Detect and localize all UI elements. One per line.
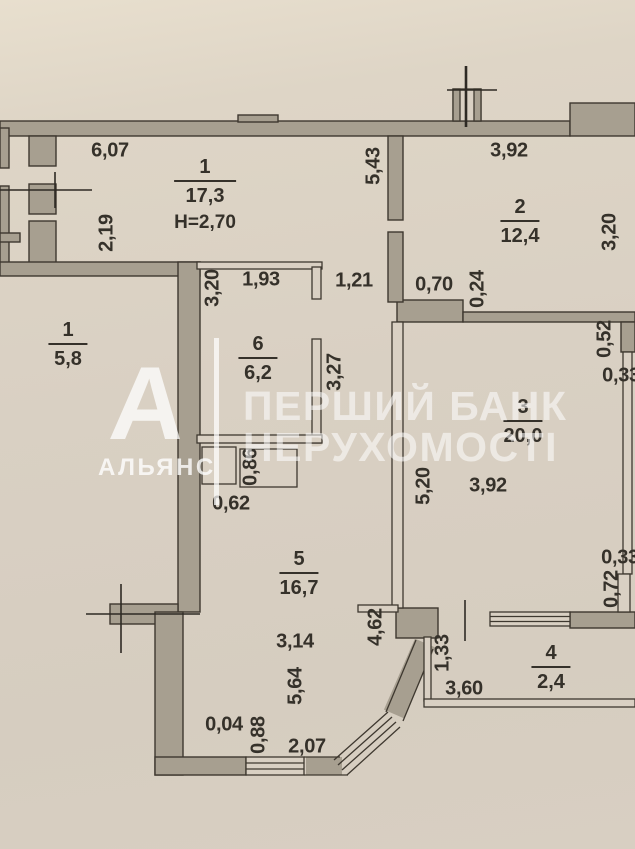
- dim-1-21: 1,21: [335, 270, 373, 293]
- floor-plan: 1 17,3 H=2,70 2 12,4 3 20,0 4 2,4 5 16,7…: [0, 0, 635, 849]
- dim-0-86: 0,86: [240, 448, 263, 486]
- dim-5-20: 5,20: [413, 467, 436, 505]
- room-number: 1: [174, 157, 236, 182]
- dim-5-64: 5,64: [285, 667, 308, 705]
- room-label-living: 1 17,3 H=2,70: [174, 157, 236, 232]
- room-area: 2,4: [531, 668, 570, 692]
- dim-3-60: 3,60: [445, 678, 483, 701]
- dim-3-92-room3: 3,92: [469, 475, 507, 498]
- dim-0-33-upper: 0,33: [602, 365, 635, 388]
- dim-0-33-lower: 0,33: [601, 547, 635, 570]
- dim-0-04: 0,04: [205, 714, 243, 737]
- dim-3-92-top: 3,92: [490, 140, 528, 163]
- room-number: 5: [279, 549, 318, 574]
- dim-1-93: 1,93: [242, 269, 280, 292]
- dim-0-72: 0,72: [601, 570, 624, 608]
- dim-0-62: 0,62: [212, 493, 250, 516]
- dim-2-07: 2,07: [288, 736, 326, 759]
- room-label-5: 5 16,7: [279, 549, 318, 598]
- dim-6-07: 6,07: [91, 140, 129, 163]
- dim-2-19: 2,19: [96, 214, 119, 252]
- room-height-note: H=2,70: [174, 206, 236, 232]
- dim-3-20-room6: 3,20: [202, 269, 225, 307]
- bay-window-icon: [334, 712, 400, 775]
- dim-0-52: 0,52: [594, 320, 617, 358]
- room-area: 16,7: [279, 574, 318, 598]
- room-label-4: 4 2,4: [531, 643, 570, 692]
- room-label-2: 2 12,4: [500, 197, 539, 246]
- dim-4-62: 4,62: [365, 608, 388, 646]
- room-area: 5,8: [48, 345, 87, 369]
- dim-0-88: 0,88: [248, 716, 271, 754]
- room-area: 6,2: [238, 359, 277, 383]
- room-label-1-left: 1 5,8: [48, 320, 87, 369]
- dim-1-33: 1,33: [432, 634, 455, 672]
- room-label-3: 3 20,0: [503, 397, 542, 446]
- dim-3-14: 3,14: [276, 631, 314, 654]
- dim-3-20-right: 3,20: [599, 213, 622, 251]
- dim-3-27: 3,27: [324, 353, 347, 391]
- dim-0-70: 0,70: [415, 274, 453, 297]
- room-number: 6: [238, 334, 277, 359]
- room-number: 2: [500, 197, 539, 222]
- room-number: 1: [48, 320, 87, 345]
- room-label-6: 6 6,2: [238, 334, 277, 383]
- room-number: 4: [531, 643, 570, 668]
- dim-0-24: 0,24: [467, 270, 490, 308]
- room-area: 12,4: [500, 222, 539, 246]
- room-number: 3: [503, 397, 542, 422]
- room-area: 17,3: [174, 182, 236, 206]
- dim-5-43: 5,43: [363, 147, 386, 185]
- room-area: 20,0: [503, 422, 542, 446]
